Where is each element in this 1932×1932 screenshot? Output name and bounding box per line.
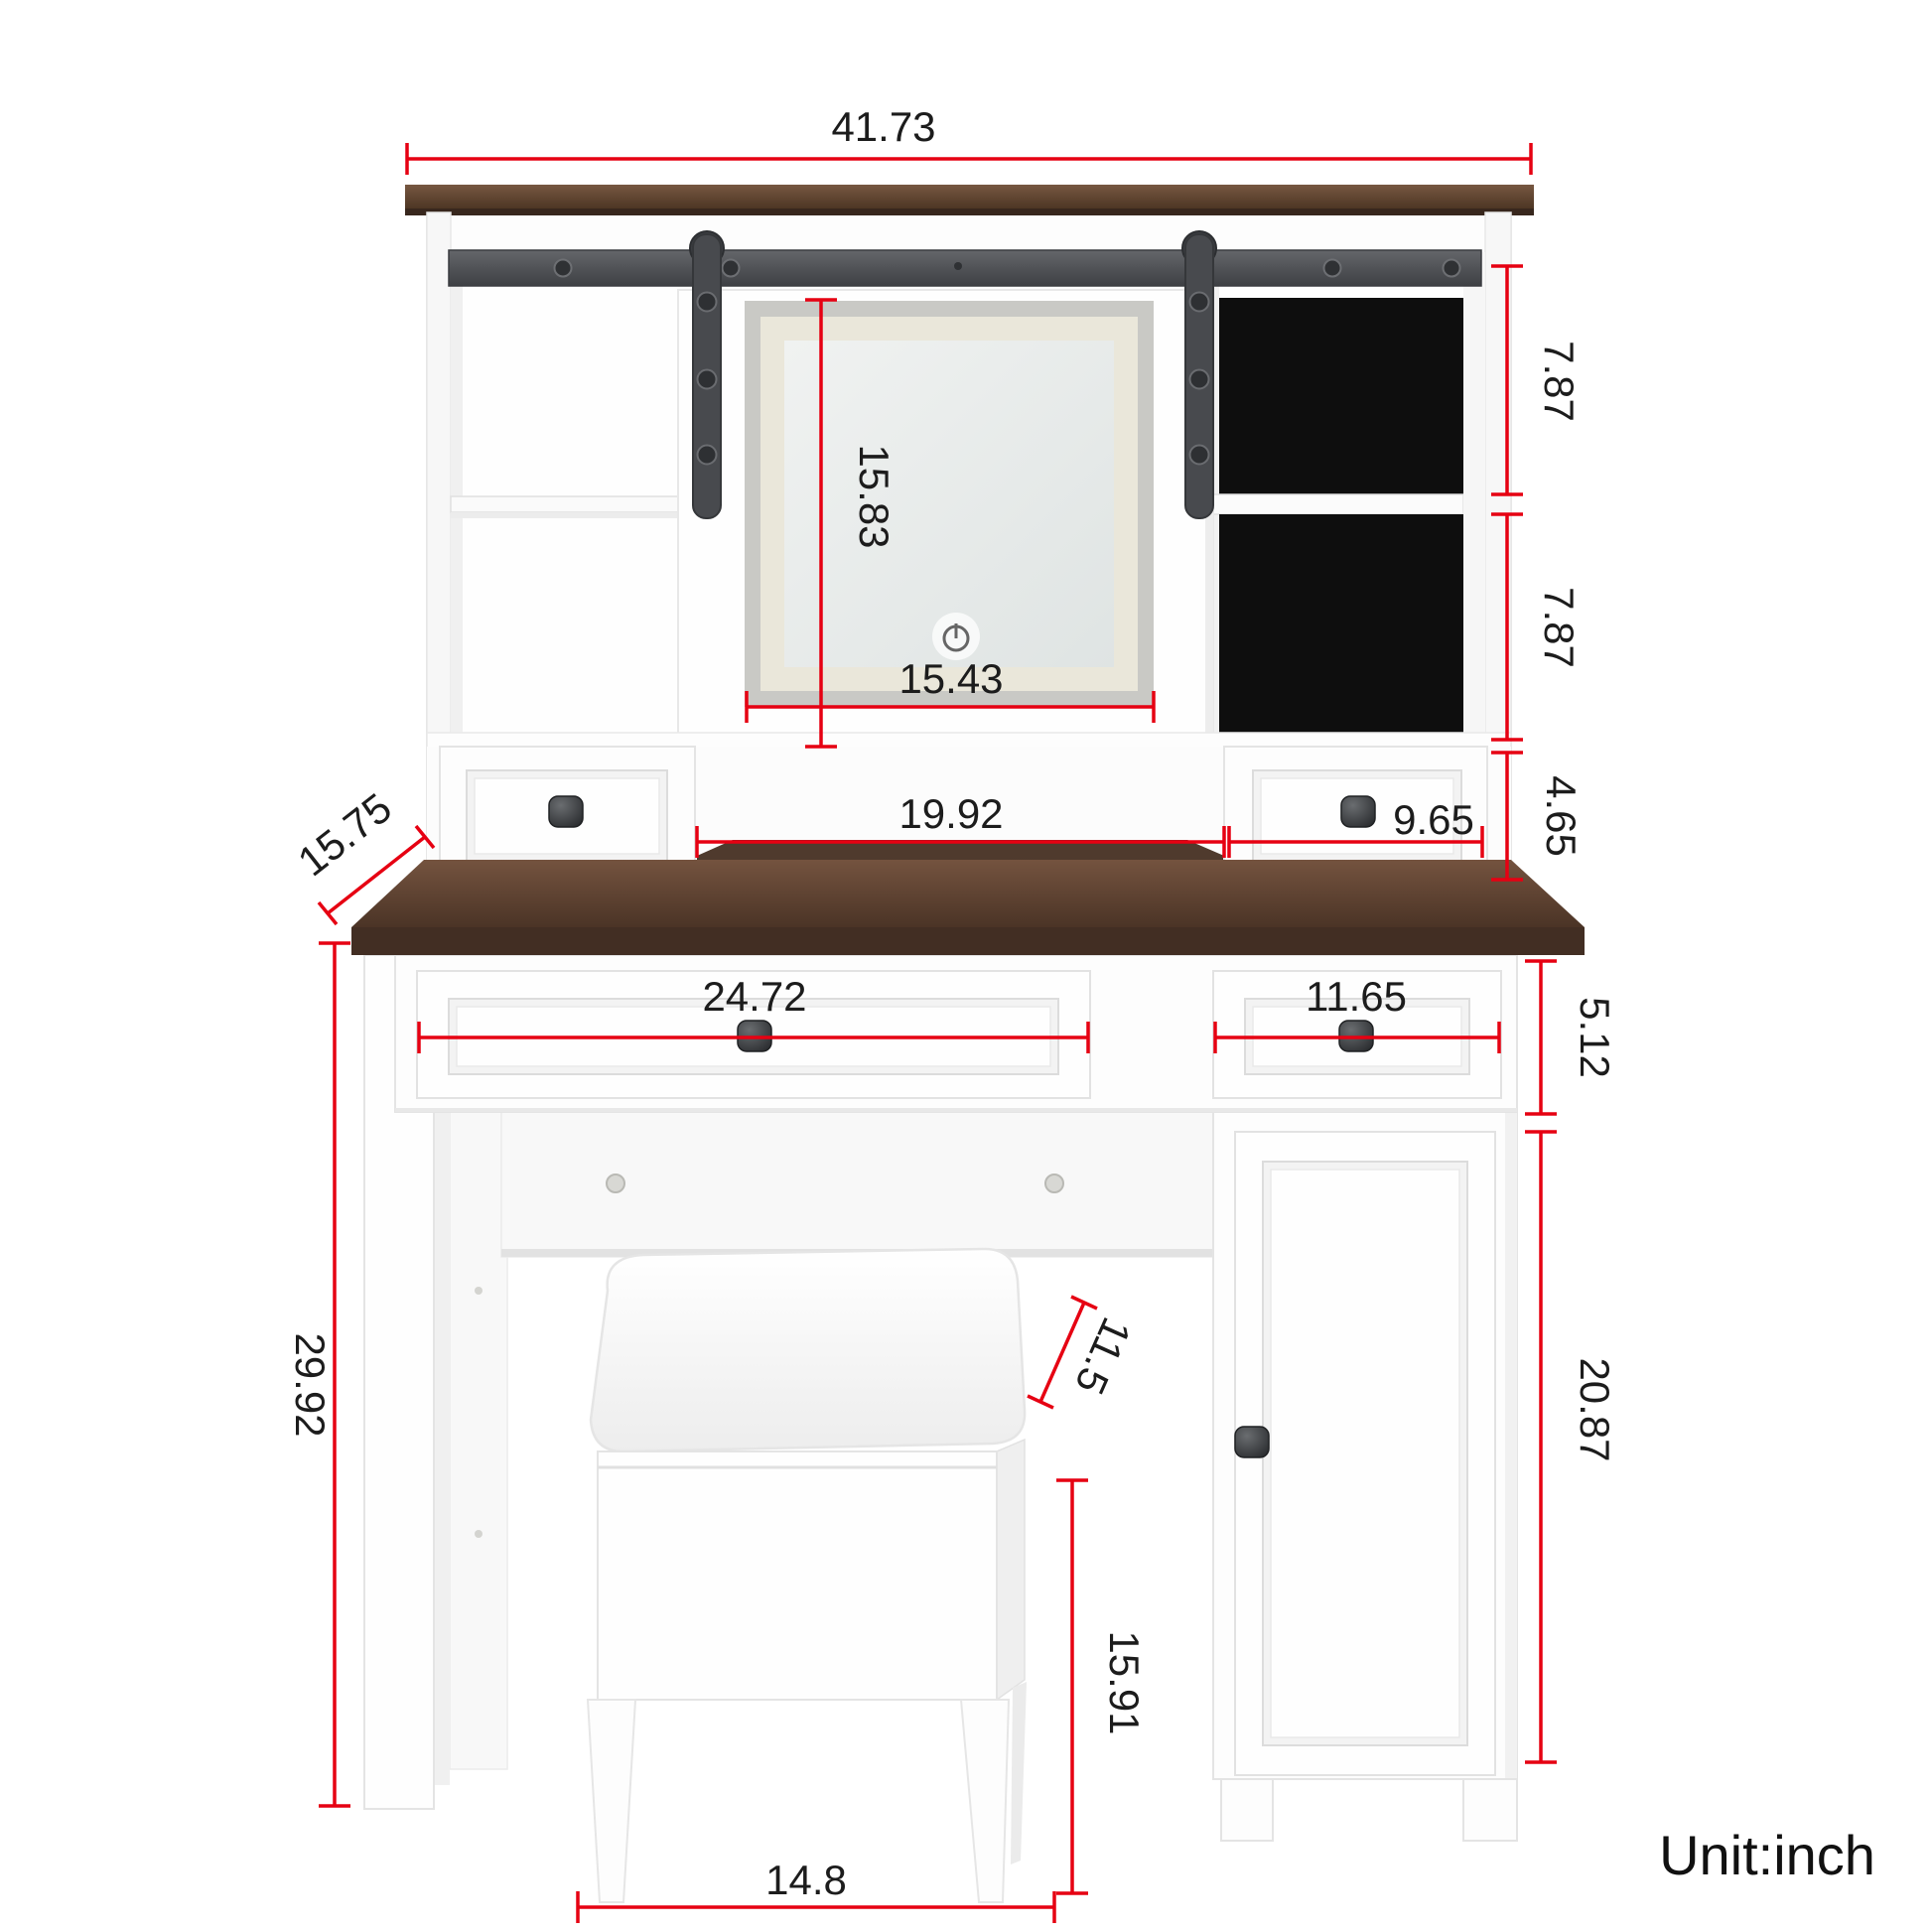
rail-bolt: [954, 262, 962, 270]
screw-hole: [475, 1530, 483, 1538]
cabinet: [1213, 1112, 1517, 1841]
dim-cabinet-door-height-label: 20.87: [1572, 1357, 1618, 1461]
drawer-knob: [549, 796, 583, 827]
cabinet-foot-left: [1221, 1779, 1273, 1841]
unit-label: Unit:inch: [1659, 1824, 1875, 1886]
left-compartment-shadow: [451, 252, 463, 733]
dim-right-drawer-width-label: 11.65: [1306, 973, 1407, 1020]
dim-stool-depth-label: 11.5: [1066, 1311, 1141, 1401]
dim-drawer-height-label: 5.12: [1572, 997, 1618, 1078]
right-cubby-shelf: [1213, 494, 1463, 514]
dim-mirror-width-label: 15.43: [898, 655, 1003, 702]
dim-cubby-top-label: 7.87: [1536, 341, 1583, 422]
dim-drawer-height-line: [1525, 961, 1557, 1114]
hutch-left-shelf-compartment: [451, 252, 678, 733]
panel-screw: [1045, 1174, 1063, 1192]
vanity-dimension-diagram: 41.73 15.83 15.43 7.87 7.87 4.65 19.92 9…: [0, 0, 1932, 1932]
dim-left-drawer-width-label: 24.72: [702, 973, 806, 1020]
drawer-knob: [1341, 796, 1375, 827]
dim-hutch-width-label: 41.73: [831, 103, 935, 150]
right-inner-wall: [1463, 252, 1485, 733]
rail-strap-left: [690, 231, 724, 518]
hutch: [405, 185, 1534, 884]
dim-cubby-bottom-label: 7.87: [1536, 587, 1583, 668]
dim-hutch-width-line: [407, 143, 1531, 175]
right-cubby-top: [1219, 298, 1463, 494]
stool-box-side: [997, 1440, 1025, 1700]
stool-leg-left: [588, 1700, 635, 1902]
dim-desk-height-label: 29.92: [287, 1332, 334, 1437]
apron-shadow: [395, 1108, 1517, 1112]
hutch-wood-top-edge: [405, 208, 1534, 215]
power-icon: [932, 613, 980, 660]
hutch-wood-top: [405, 185, 1534, 212]
dim-hutch-open-width-label: 19.92: [898, 790, 1003, 837]
hutch-right-cubbies: [1213, 252, 1485, 733]
panel-screw: [607, 1174, 624, 1192]
dim-stool-height-line: [1056, 1480, 1088, 1893]
cabinet-side-shade: [1505, 1112, 1517, 1779]
desktop-surface: [351, 860, 1585, 927]
left-shelf-shadow: [451, 512, 678, 518]
dim-hutch-drawer-height-label: 4.65: [1538, 775, 1585, 857]
cabinet-foot-right: [1463, 1779, 1517, 1841]
right-cubby-bottom: [1219, 514, 1463, 733]
left-compartment-back: [451, 252, 678, 733]
stool-cushion: [591, 1249, 1025, 1451]
rail-bolt: [723, 260, 740, 277]
stool-leg-right: [961, 1700, 1009, 1902]
dim-cabinet-door-height-line: [1525, 1132, 1557, 1762]
cabinet-door: [1235, 1132, 1495, 1775]
dim-hutch-drawer-width-label: 9.65: [1393, 796, 1474, 843]
dim-stool-width-label: 14.8: [765, 1857, 847, 1903]
rail-bolt: [1324, 260, 1341, 277]
rail-strap-right: [1182, 231, 1216, 518]
cabinet-door-knob: [1235, 1427, 1269, 1457]
desktop-front-edge: [351, 927, 1585, 955]
rail-bolt: [555, 260, 572, 277]
dim-mirror-height-label: 15.83: [851, 444, 897, 548]
barn-door-rail: [449, 250, 1481, 286]
desktop: [351, 860, 1585, 955]
screw-hole: [475, 1287, 483, 1295]
rail-bolt: [1444, 260, 1460, 277]
left-compartment-shelf: [451, 496, 678, 512]
stool: [588, 1249, 1027, 1902]
stool-leg-back: [1011, 1682, 1027, 1864]
stool-box: [598, 1451, 997, 1700]
dim-stool-height-label: 15.91: [1101, 1630, 1148, 1734]
